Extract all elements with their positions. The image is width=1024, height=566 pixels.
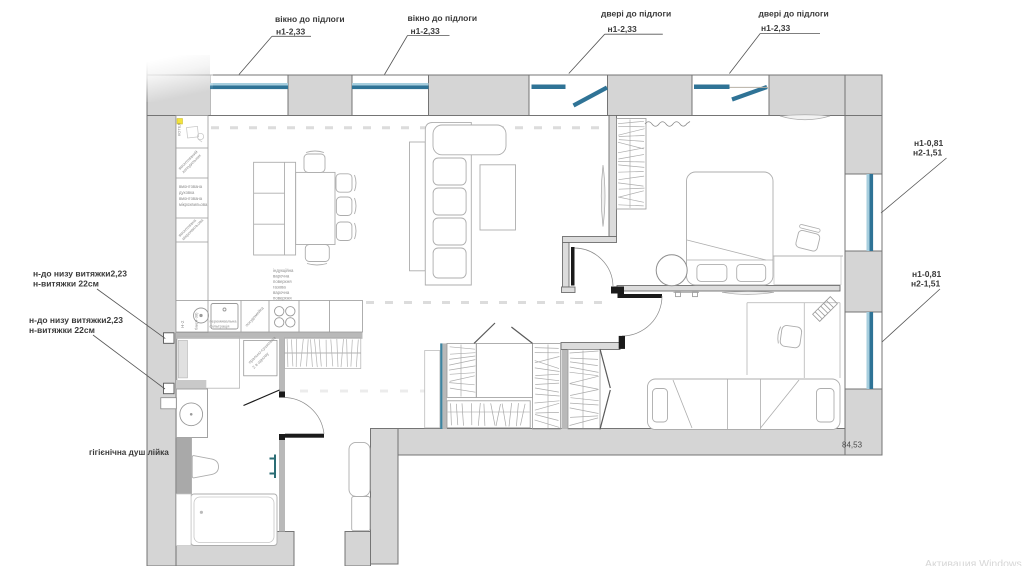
svg-text:Н-2: Н-2 xyxy=(180,320,185,328)
svg-text:84,53: 84,53 xyxy=(842,441,863,450)
svg-text:індукційна: індукційна xyxy=(273,268,294,273)
svg-text:вікно до підлоги: вікно до підлоги xyxy=(275,14,345,24)
svg-text:бак(Н-38): бак(Н-38) xyxy=(194,312,199,330)
svg-text:поверхня: поверхня xyxy=(273,279,292,284)
svg-text:н1-0,81: н1-0,81 xyxy=(914,138,944,148)
svg-text:н1-2,33: н1-2,33 xyxy=(276,27,306,37)
svg-text:поверхня: поверхня xyxy=(273,296,292,301)
svg-text:вмонтована: вмонтована xyxy=(179,196,203,201)
svg-text:н-витяжки 22см: н-витяжки 22см xyxy=(29,325,95,335)
svg-text:мікрохвильова: мікрохвильова xyxy=(179,202,208,207)
svg-text:газова: газова xyxy=(273,285,286,290)
svg-text:варочна: варочна xyxy=(273,274,290,279)
svg-text:вмонтована: вмонтована xyxy=(179,184,203,189)
svg-text:двері до підлоги: двері до підлоги xyxy=(601,9,671,19)
svg-text:Активация Windows: Активация Windows xyxy=(925,558,1022,566)
svg-text:фільтрація: фільтрація xyxy=(210,324,230,329)
svg-text:духовка: духовка xyxy=(179,190,195,195)
svg-text:н1-2,33: н1-2,33 xyxy=(608,24,638,34)
svg-text:н2-1,51: н2-1,51 xyxy=(911,279,941,289)
svg-text:н-витяжки 22см: н-витяжки 22см xyxy=(33,279,99,289)
svg-text:КОТЕЛ: КОТЕЛ xyxy=(177,122,182,136)
svg-text:н-до низу витяжки2,23: н-до низу витяжки2,23 xyxy=(33,269,127,279)
svg-text:н-до низу витяжки2,23: н-до низу витяжки2,23 xyxy=(29,315,123,325)
svg-text:н2-1,51: н2-1,51 xyxy=(913,148,943,158)
svg-text:н1-2,33: н1-2,33 xyxy=(761,23,791,33)
svg-text:н1-2,33: н1-2,33 xyxy=(411,26,441,36)
svg-text:гігієнічна душ лійка: гігієнічна душ лійка xyxy=(89,448,169,457)
svg-text:двері до підлоги: двері до підлоги xyxy=(759,9,829,19)
svg-text:н1-0,81: н1-0,81 xyxy=(912,269,942,279)
svg-text:вікно до підлоги: вікно до підлоги xyxy=(408,13,478,23)
svg-text:варочна: варочна xyxy=(273,290,290,295)
